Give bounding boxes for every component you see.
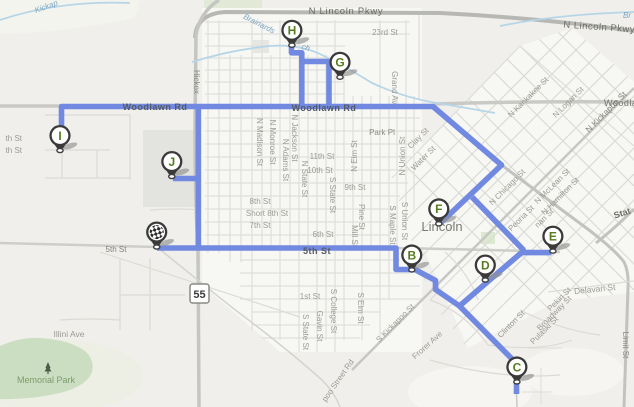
svg-text:Gavin St: Gavin St — [315, 311, 324, 342]
svg-text:S State St: S State St — [328, 177, 337, 214]
svg-text:S College St: S College St — [329, 289, 338, 334]
svg-text:Woodlawn: Woodlawn — [604, 98, 634, 108]
svg-text:7th St: 7th St — [250, 221, 272, 230]
svg-text:23rd St: 23rd St — [372, 28, 399, 37]
svg-text:Limit St: Limit St — [621, 332, 630, 359]
svg-text:J: J — [168, 155, 175, 169]
svg-text:th St: th St — [6, 134, 23, 143]
svg-text:S State St: S State St — [301, 314, 310, 351]
svg-text:Short 8th St: Short 8th St — [246, 209, 289, 218]
svg-text:N Jackson St: N Jackson St — [290, 114, 299, 162]
svg-text:5th St: 5th St — [303, 246, 331, 256]
svg-text:Mill St: Mill St — [350, 225, 359, 248]
svg-text:Woodlawn Rd: Woodlawn Rd — [292, 103, 357, 113]
svg-text:Memorial Park: Memorial Park — [17, 375, 76, 385]
svg-text:N Union St: N Union St — [398, 136, 407, 175]
svg-text:Woodlawn Rd: Woodlawn Rd — [123, 102, 188, 112]
svg-text:S Union St: S Union St — [400, 202, 409, 241]
svg-text:Illini Ave: Illini Ave — [53, 329, 84, 339]
svg-text:F: F — [435, 202, 442, 216]
svg-text:G: G — [335, 56, 344, 70]
svg-text:H: H — [288, 24, 297, 38]
svg-text:N Adams St: N Adams St — [281, 139, 290, 182]
svg-text:N Lincoln Pkwy: N Lincoln Pkwy — [309, 6, 384, 17]
svg-text:N Elm St: N Elm St — [350, 139, 359, 171]
svg-text:D: D — [481, 258, 490, 272]
svg-text:55: 55 — [193, 289, 205, 301]
svg-text:S Elm St: S Elm St — [356, 292, 365, 324]
svg-text:C: C — [513, 360, 522, 374]
svg-text:Grand Ave: Grand Ave — [390, 71, 399, 109]
svg-text:11th St: 11th St — [310, 152, 336, 161]
svg-text:N State St: N State St — [300, 161, 309, 198]
svg-text:10th St: 10th St — [307, 166, 333, 175]
svg-text:B: B — [407, 248, 416, 262]
svg-text:Park Pl: Park Pl — [369, 128, 395, 137]
svg-text:N Madison St: N Madison St — [255, 118, 264, 167]
svg-text:S Maple St: S Maple St — [388, 205, 397, 245]
svg-text:N Monroe St: N Monroe St — [268, 120, 277, 166]
svg-text:5th St: 5th St — [106, 245, 128, 254]
svg-text:th St: th St — [6, 146, 23, 155]
svg-text:Hickox: Hickox — [192, 70, 201, 94]
svg-text:I: I — [58, 129, 61, 143]
svg-text:Br: Br — [623, 11, 631, 20]
svg-text:E: E — [549, 230, 557, 244]
svg-text:6th St: 6th St — [313, 230, 335, 239]
svg-text:9th St: 9th St — [345, 183, 367, 192]
svg-text:1st St: 1st St — [300, 292, 321, 301]
svg-text:8th St: 8th St — [250, 197, 272, 206]
